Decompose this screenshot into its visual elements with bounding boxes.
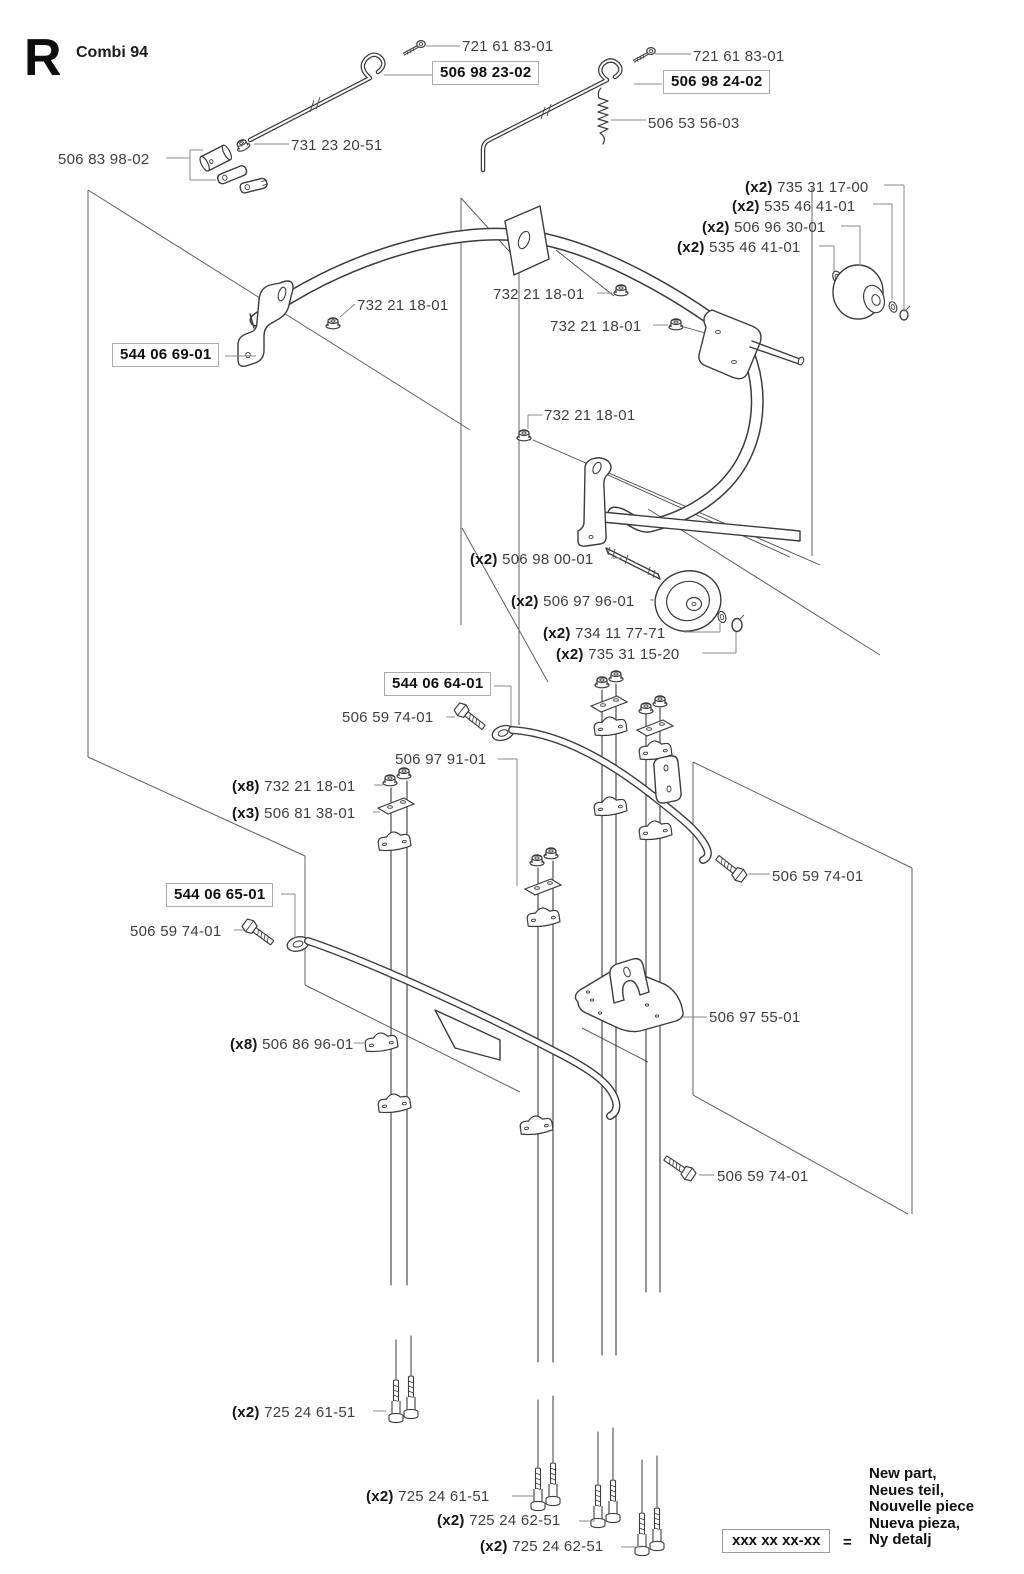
- throttle-rod-left-assembly: [198, 41, 425, 194]
- part-label-544-06-69-01: 544 06 69-01: [112, 343, 219, 367]
- part-label-732-21-18-01: 732 21 18-01: [357, 297, 448, 314]
- legend-line: New part,: [869, 1466, 974, 1483]
- part-label-506-59-74-01: 506 59 74-01: [772, 868, 863, 885]
- part-label-506-96-30-01: (x2) 506 96 30-01: [702, 219, 826, 236]
- part-label-506-97-55-01: 506 97 55-01: [709, 1009, 800, 1026]
- part-label-725-24-61-51: (x2) 725 24 61-51: [232, 1404, 356, 1421]
- part-label-734-11-77-71: (x2) 734 11 77-71: [543, 625, 665, 642]
- quantity-prefix: (x2): [677, 239, 705, 256]
- part-label-506-98-24-02: 506 98 24-02: [663, 70, 770, 94]
- part-number: 732 21 18-01: [544, 407, 635, 424]
- part-number: 506 59 74-01: [130, 923, 221, 940]
- part-number: 731 23 20-51: [291, 137, 382, 154]
- part-label-506-98-00-01: (x2) 506 98 00-01: [470, 551, 594, 568]
- legend-line: Nueva pieza,: [869, 1516, 974, 1533]
- quantity-prefix: (x2): [470, 551, 498, 568]
- handlebar-assembly: [250, 206, 805, 546]
- part-number: 506 98 00-01: [502, 551, 593, 568]
- part-label-506-59-74-01: 506 59 74-01: [717, 1168, 808, 1185]
- roller-wheel-assembly: [831, 265, 910, 320]
- quantity-prefix: (x3): [232, 805, 260, 822]
- part-number: 544 06 65-01: [174, 886, 265, 903]
- legend-text: New part,Neues teil,Nouvelle pieceNueva …: [869, 1466, 974, 1549]
- part-label-544-06-64-01: 544 06 64-01: [384, 672, 491, 696]
- part-number: 506 59 74-01: [717, 1168, 808, 1185]
- part-label-725-24-62-51: (x2) 725 24 62-51: [437, 1512, 561, 1529]
- part-label-506-83-98-02: 506 83 98-02: [58, 151, 149, 168]
- part-number: 506 98 24-02: [671, 73, 762, 90]
- part-number: 544 06 64-01: [392, 675, 483, 692]
- part-number: 721 61 83-01: [693, 48, 784, 65]
- legend-line: Ny detalj: [869, 1532, 974, 1549]
- part-number: 732 21 18-01: [550, 318, 641, 335]
- legend-equals-sign: =: [843, 1534, 852, 1551]
- part-number: 506 83 98-02: [58, 151, 149, 168]
- page-title: Combi 94: [76, 44, 148, 62]
- part-number: 506 59 74-01: [342, 709, 433, 726]
- clevis-pin: [633, 48, 655, 63]
- legend-line: Neues teil,: [869, 1483, 974, 1500]
- part-number: 725 24 62-51: [512, 1538, 603, 1555]
- part-label-506-97-91-01: 506 97 91-01: [395, 751, 486, 768]
- quantity-prefix: (x2): [702, 219, 730, 236]
- part-number: 506 86 96-01: [262, 1036, 353, 1053]
- leader-lines: [166, 46, 904, 1547]
- part-number: 535 46 41-01: [764, 198, 855, 215]
- parts-diagram-page: R Combi 94 721 61 83-01506 98 23-02721 6…: [0, 0, 1024, 1574]
- part-label-731-23-20-51: 731 23 20-51: [291, 137, 382, 154]
- quantity-prefix: (x2): [511, 593, 539, 610]
- part-label-535-46-41-01: (x2) 535 46 41-01: [677, 239, 801, 256]
- mount-tab: [654, 756, 681, 803]
- part-label-721-61-83-01: 721 61 83-01: [693, 48, 784, 65]
- part-number: 725 24 61-51: [264, 1404, 355, 1421]
- clamp-stacks: [364, 671, 681, 1136]
- quantity-prefix: (x2): [437, 1512, 465, 1529]
- part-number: 544 06 69-01: [120, 346, 211, 363]
- quantity-prefix: (x2): [480, 1538, 508, 1555]
- part-number: 506 53 56-03: [648, 115, 739, 132]
- part-label-506-97-96-01: (x2) 506 97 96-01: [511, 593, 635, 610]
- part-number: 732 21 18-01: [264, 778, 355, 795]
- part-number: 506 96 30-01: [734, 219, 825, 236]
- part-label-535-46-41-01: (x2) 535 46 41-01: [732, 198, 856, 215]
- part-number: 506 59 74-01: [772, 868, 863, 885]
- part-label-506-59-74-01: 506 59 74-01: [342, 709, 433, 726]
- part-label-725-24-62-51: (x2) 725 24 62-51: [480, 1538, 604, 1555]
- part-label-506-86-96-01: (x8) 506 86 96-01: [230, 1036, 354, 1053]
- part-label-735-31-17-00: (x2) 735 31 17-00: [745, 179, 869, 196]
- part-number: 721 61 83-01: [462, 38, 553, 55]
- part-label-721-61-83-01: 721 61 83-01: [462, 38, 553, 55]
- stabilizer-rod-544-06-65: [286, 935, 617, 1116]
- part-number: 734 11 77-71: [575, 625, 665, 642]
- part-label-506-81-38-01: (x3) 506 81 38-01: [232, 805, 356, 822]
- quantity-prefix: (x2): [732, 198, 760, 215]
- part-number: 725 24 62-51: [469, 1512, 560, 1529]
- part-number: 506 97 91-01: [395, 751, 486, 768]
- part-label-732-21-18-01: (x8) 732 21 18-01: [232, 778, 356, 795]
- quantity-prefix: (x2): [745, 179, 773, 196]
- support-bracket-544-06-69: [238, 281, 293, 366]
- quantity-prefix: (x2): [366, 1488, 394, 1505]
- part-number: 506 98 23-02: [440, 64, 531, 81]
- part-label-732-21-18-01: 732 21 18-01: [544, 407, 635, 424]
- quantity-prefix: (x2): [556, 646, 584, 663]
- exploded-parts-drawing: [0, 0, 1024, 1574]
- quantity-prefix: (x2): [543, 625, 571, 642]
- part-number: 735 31 15-20: [588, 646, 679, 663]
- part-label-544-06-65-01: 544 06 65-01: [166, 883, 273, 907]
- part-label-506-98-23-02: 506 98 23-02: [432, 61, 539, 85]
- part-number: 506 97 96-01: [543, 593, 634, 610]
- quantity-prefix: (x2): [232, 1404, 260, 1421]
- part-number: 535 46 41-01: [709, 239, 800, 256]
- part-label-506-59-74-01: 506 59 74-01: [130, 923, 221, 940]
- clevis-pin: [403, 41, 425, 56]
- part-number: 732 21 18-01: [493, 286, 584, 303]
- part-number: 725 24 61-51: [398, 1488, 489, 1505]
- quantity-prefix: (x8): [230, 1036, 258, 1053]
- axle-bolt: [606, 547, 660, 579]
- part-label-732-21-18-01: 732 21 18-01: [550, 318, 641, 335]
- tension-spring: [598, 88, 608, 144]
- legend-line: Nouvelle piece: [869, 1499, 974, 1516]
- part-label-735-31-15-20: (x2) 735 31 15-20: [556, 646, 680, 663]
- quantity-prefix: (x8): [232, 778, 260, 795]
- part-number: 506 97 55-01: [709, 1009, 800, 1026]
- base-plate-506-97-55: [575, 959, 683, 1032]
- legend-part-number-box: xxx xx xx-xx: [722, 1529, 830, 1553]
- part-label-725-24-61-51: (x2) 725 24 61-51: [366, 1488, 490, 1505]
- part-label-506-53-56-03: 506 53 56-03: [648, 115, 739, 132]
- section-letter: R: [24, 32, 62, 84]
- part-number: 735 31 17-00: [777, 179, 868, 196]
- part-number: 506 81 38-01: [264, 805, 355, 822]
- part-number: 732 21 18-01: [357, 297, 448, 314]
- part-label-732-21-18-01: 732 21 18-01: [493, 286, 584, 303]
